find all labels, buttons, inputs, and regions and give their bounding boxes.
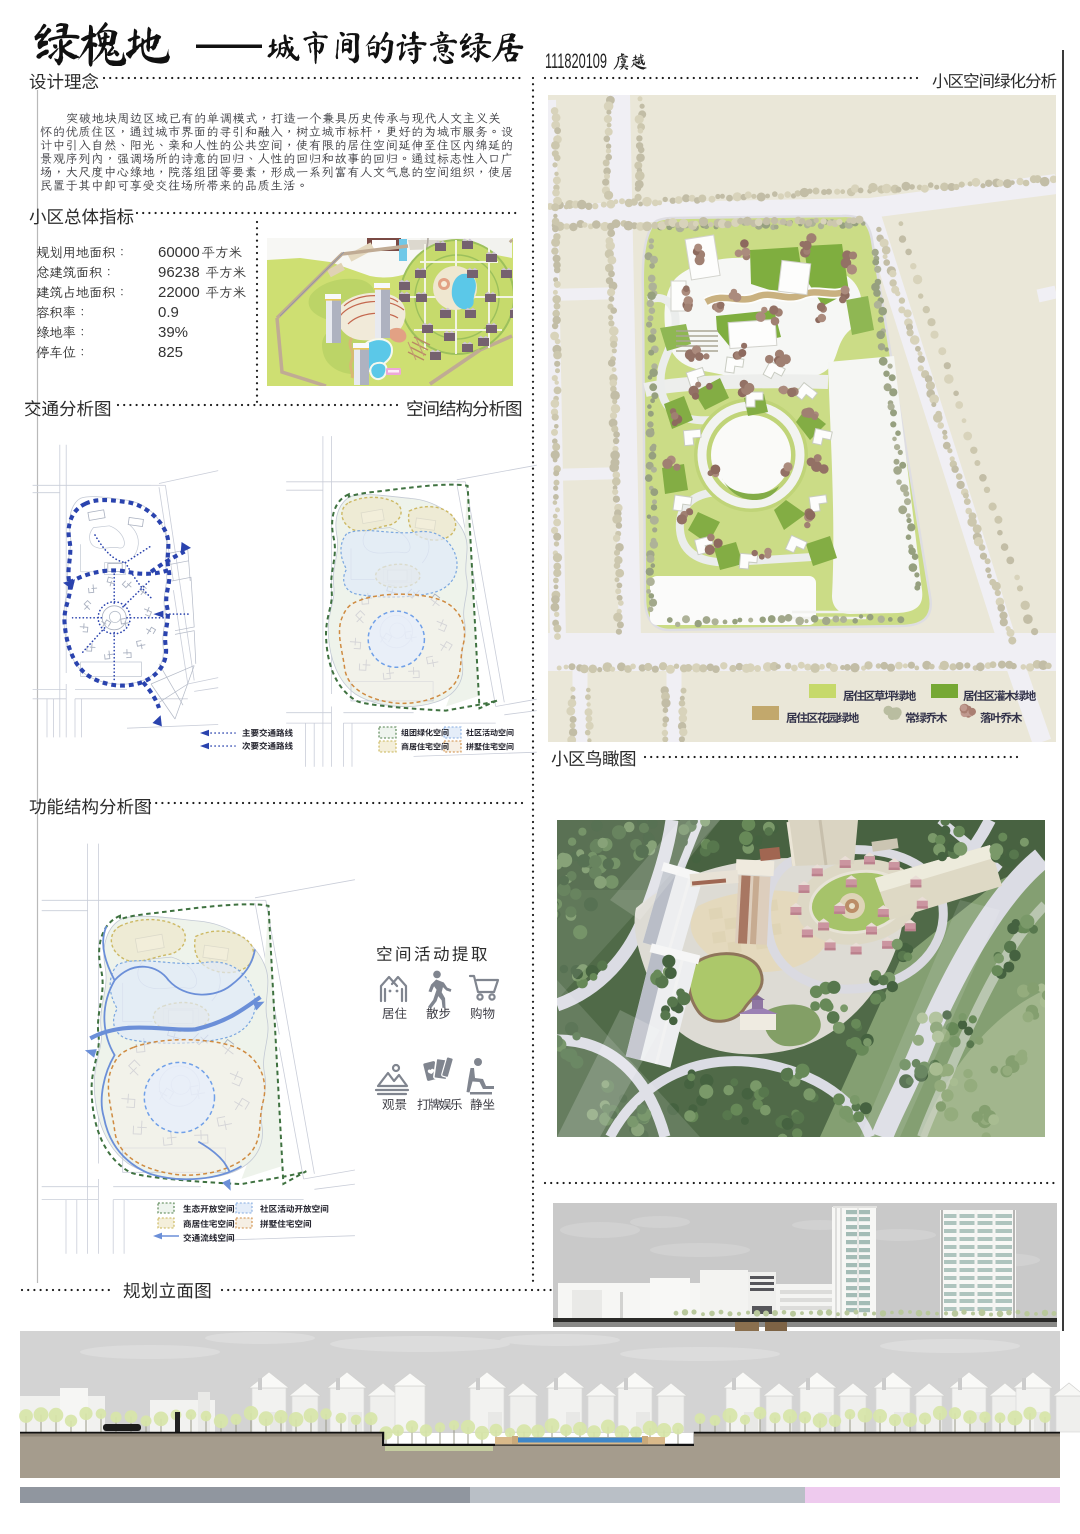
svg-text:22000: 22000 (158, 284, 200, 301)
svg-text:825: 825 (158, 344, 183, 361)
svg-text:96238: 96238 (158, 264, 200, 281)
svg-text:39%: 39% (158, 324, 188, 341)
svg-text:111820109: 111820109 (545, 50, 607, 73)
svg-text:60000: 60000 (158, 244, 200, 261)
svg-text:0.9: 0.9 (158, 304, 179, 321)
